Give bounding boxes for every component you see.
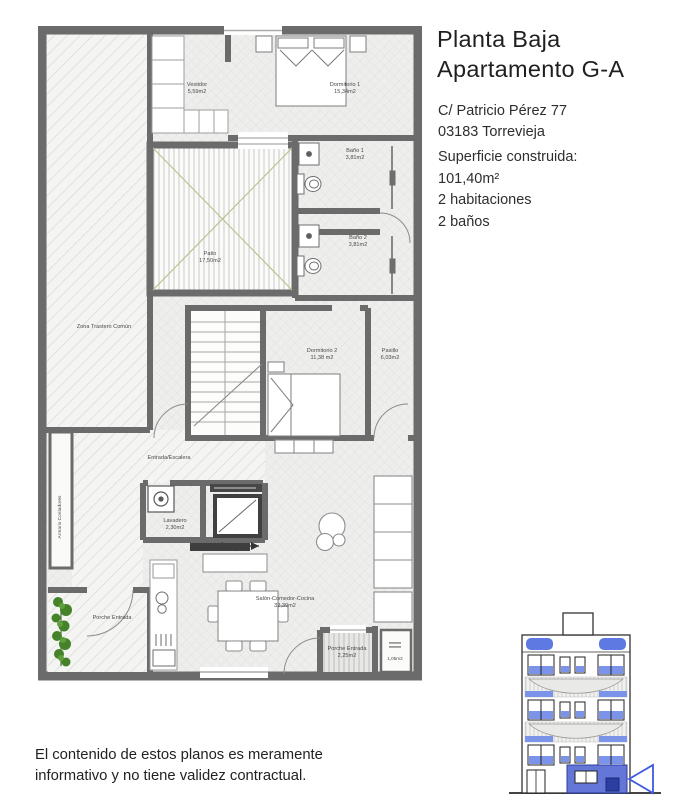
- washing-machine: [148, 486, 174, 512]
- baths-count: 2 baños: [438, 212, 577, 234]
- view-direction-marker: [629, 765, 653, 793]
- address-line-2: 03183 Torrevieja: [438, 122, 567, 143]
- svg-text:15,34m2: 15,34m2: [334, 89, 356, 95]
- svg-text:3,81m2: 3,81m2: [349, 242, 368, 248]
- label-bano1: Baño 1: [346, 148, 364, 154]
- floorplan-page: { "header": { "title_line1": "Planta Baj…: [0, 0, 690, 800]
- windows: [528, 655, 624, 765]
- svg-text:6,03m2: 6,03m2: [381, 355, 400, 361]
- surface-value: 101,40m²: [438, 169, 577, 191]
- label-porche-izq: Porche Entrada: [93, 615, 133, 621]
- disclaimer: El contenido de estos planos es merament…: [35, 745, 323, 787]
- svg-text:32,39m2: 32,39m2: [274, 603, 296, 609]
- corridor-floor: [72, 483, 143, 590]
- surface-label: Superficie construida:: [438, 147, 577, 169]
- patio: [150, 145, 295, 293]
- label-dormitorio2: Dormitorio 2: [307, 348, 337, 354]
- disclaimer-line-1: El contenido de estos planos es merament…: [35, 745, 323, 766]
- label-lavadero: Lavadero: [163, 518, 186, 524]
- zona-trastero-floor: [47, 35, 150, 430]
- svg-text:2,25m2: 2,25m2: [338, 653, 357, 659]
- page-title: Planta Baja Apartamento G-A: [437, 24, 624, 84]
- label-porche-der: Porche Entrada: [328, 646, 368, 652]
- title-line-1: Planta Baja: [437, 24, 624, 54]
- svg-text:17,50m2: 17,50m2: [199, 258, 221, 264]
- svg-text:2,30m2: 2,30m2: [166, 525, 185, 531]
- label-armario-contadores: Armario Contadores: [57, 495, 63, 539]
- floor-plan: Vestidor 5,59m2 Dormitorio 1 15,34m2 Bañ…: [38, 26, 422, 682]
- building-elevation-drawing: [505, 608, 665, 798]
- svg-text:3,81m2: 3,81m2: [346, 155, 365, 161]
- title-line-2: Apartamento G-A: [437, 54, 624, 84]
- surface-info: Superficie construida: 101,40m² 2 habita…: [438, 147, 577, 233]
- disclaimer-line-2: informativo y no tiene validez contractu…: [35, 766, 323, 787]
- rooms-count: 2 habitaciones: [438, 190, 577, 212]
- label-bano2: Baño 2: [349, 235, 367, 241]
- svg-text:11,38 m2: 11,38 m2: [311, 355, 334, 361]
- chimney: [563, 613, 593, 635]
- staircase: [188, 308, 263, 438]
- label-entrada: Entrada/Escalera: [148, 455, 192, 461]
- label-dormitorio1: Dormitorio 1: [330, 82, 360, 88]
- floor-plan-drawing: Vestidor 5,59m2 Dormitorio 1 15,34m2 Bañ…: [38, 26, 422, 682]
- label-zona-trastero: Zona Trastero Común: [77, 324, 131, 330]
- svg-text:5,59m2: 5,59m2: [188, 89, 207, 95]
- label-patio: Patio: [204, 251, 217, 257]
- label-vestidor: Vestidor: [187, 82, 207, 88]
- label-salon: Salón-Comedor-Cocina: [256, 596, 315, 602]
- label-pasillo: Pasillo: [382, 348, 398, 354]
- small-closet: [381, 630, 411, 672]
- building-elevation: [505, 608, 665, 798]
- label-armario-porche: 1,05m2: [387, 656, 403, 661]
- address: C/ Patricio Pérez 77 03183 Torrevieja: [438, 101, 567, 143]
- address-line-1: C/ Patricio Pérez 77: [438, 101, 567, 122]
